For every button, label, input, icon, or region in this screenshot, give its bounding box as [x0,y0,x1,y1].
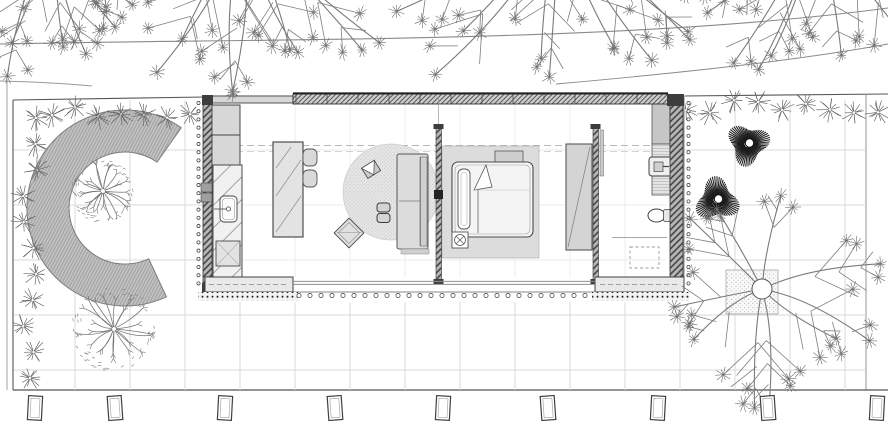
double-bed [452,162,533,237]
glazing-band-top [293,94,668,104]
partition-b [593,126,599,281]
partition-a-cap-top [434,124,444,129]
bar-stool-2 [303,170,317,187]
partition-b-cap-top [591,124,601,129]
tall-cabinet [652,103,670,144]
left-wall-connector-2 [201,193,212,202]
curved-hedge [27,110,181,306]
left-wall-post-top [202,95,213,105]
dark-shrub-balls [696,126,770,218]
pillow [458,169,470,229]
pouf-2 [377,214,390,223]
toilet [648,209,671,222]
storage-unit-2 [211,135,240,165]
wall-sink [649,157,673,176]
site-plan-svg [0,0,888,441]
partition-a-post [434,190,443,199]
storage-unit-1 [211,105,240,135]
top-wall-left [211,96,293,103]
partition-a [436,126,442,281]
road-edge-lines [0,8,888,86]
sliding-door [600,130,604,176]
stone-band-right [592,292,689,301]
right-wall [670,96,683,293]
right-wall-post-top [667,94,684,106]
building [198,92,689,302]
site-plan-canvas [0,0,888,441]
pouf-1 [377,203,390,212]
left-wall-connector-1 [201,183,212,192]
bedside-table-lamp [452,232,468,248]
overhanging-street-trees [0,0,888,102]
appliance-unit [216,241,240,266]
kitchen-island [273,142,303,237]
bar-stool-1 [303,149,317,166]
stone-band-left [198,292,298,301]
sofa [397,154,429,254]
wardrobe [566,144,592,250]
